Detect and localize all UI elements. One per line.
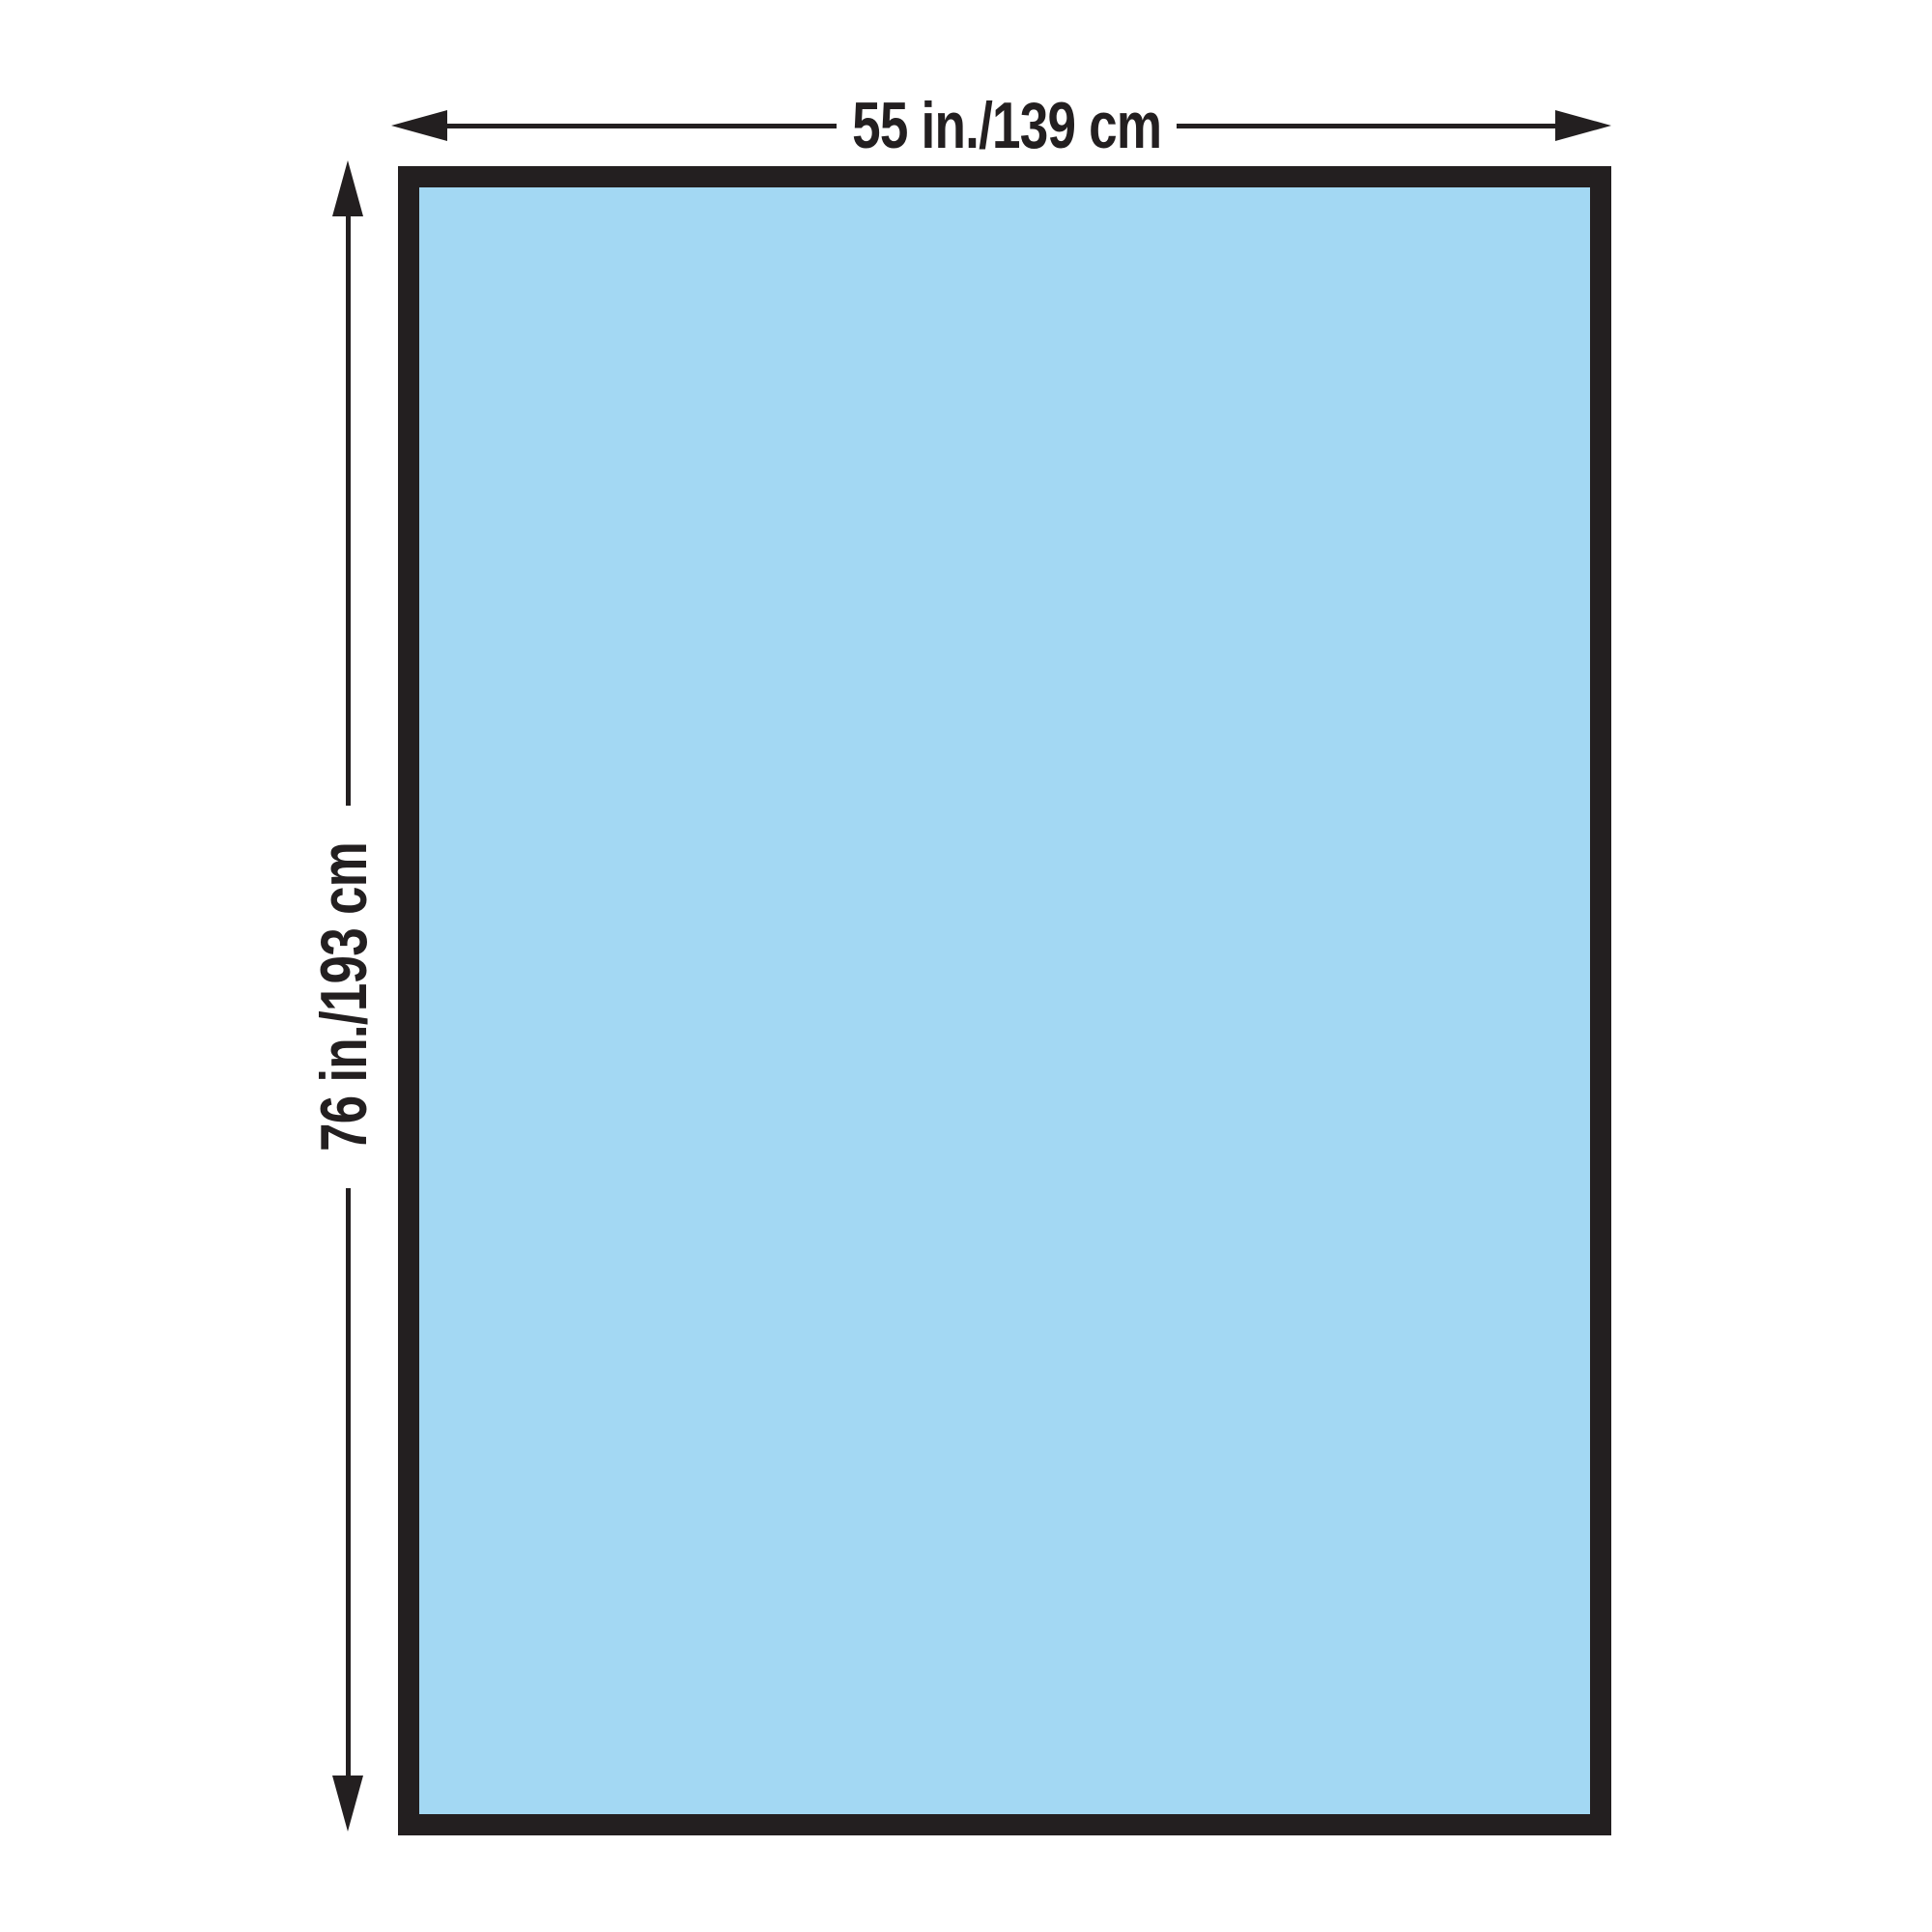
diagram-canvas: 55 in./139 cm 76 in./193 cm xyxy=(0,0,1932,1932)
width-dimension-line-right xyxy=(1177,124,1559,128)
drape-rectangle xyxy=(398,166,1611,1835)
height-dimension-line-top xyxy=(346,214,351,806)
arrow-up-icon xyxy=(332,160,363,216)
width-dimension-label-text: 55 in./139 cm xyxy=(852,88,1161,163)
width-dimension-label: 55 in./139 cm xyxy=(835,83,1179,168)
arrow-down-icon xyxy=(332,1776,363,1832)
width-dimension-line-left xyxy=(442,124,837,128)
arrow-right-icon xyxy=(1555,110,1611,141)
arrow-left-icon xyxy=(391,110,447,141)
height-dimension-label-text: 76 in./193 cm xyxy=(306,841,382,1151)
height-dimension-line-bottom xyxy=(346,1188,351,1779)
height-dimension-label: 76 in./193 cm xyxy=(286,805,402,1188)
